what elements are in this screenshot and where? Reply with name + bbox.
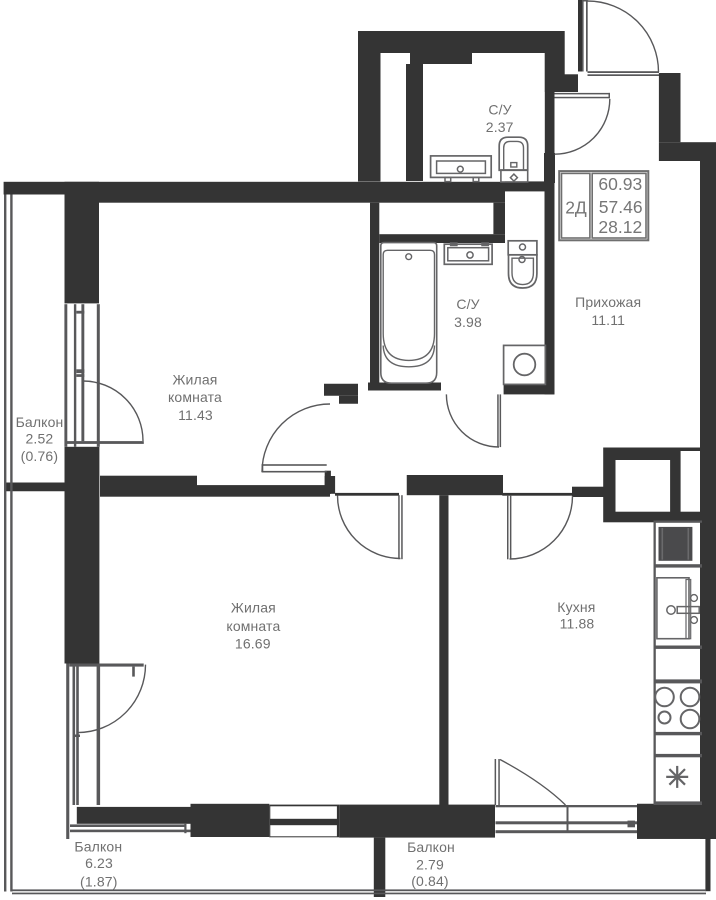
svg-text:Балкон: Балкон <box>74 839 122 855</box>
svg-text:2.52: 2.52 <box>25 430 53 446</box>
svg-text:11.88: 11.88 <box>560 615 595 631</box>
svg-text:Жилая: Жилая <box>231 600 276 616</box>
svg-text:60.93: 60.93 <box>598 174 642 194</box>
svg-text:28.12: 28.12 <box>598 217 642 237</box>
svg-text:3.98: 3.98 <box>454 314 482 330</box>
svg-text:Кухня: Кухня <box>557 599 595 615</box>
svg-text:комната: комната <box>226 618 280 634</box>
svg-text:57.46: 57.46 <box>599 197 643 217</box>
svg-text:16.69: 16.69 <box>235 635 271 651</box>
svg-text:6.23: 6.23 <box>85 855 113 871</box>
svg-text:С/У: С/У <box>456 296 479 312</box>
svg-text:Прихожая: Прихожая <box>575 294 641 310</box>
svg-text:2.79: 2.79 <box>416 857 444 873</box>
svg-text:2.37: 2.37 <box>486 119 514 135</box>
svg-text:(1.87): (1.87) <box>80 873 117 889</box>
svg-text:(0.76): (0.76) <box>21 448 58 464</box>
svg-text:(0.84): (0.84) <box>411 873 448 889</box>
svg-text:С/У: С/У <box>488 102 511 118</box>
svg-text:2Д: 2Д <box>565 198 587 218</box>
svg-text:Балкон: Балкон <box>16 414 64 430</box>
svg-text:11.43: 11.43 <box>178 407 213 423</box>
svg-text:Жилая: Жилая <box>172 372 217 388</box>
svg-text:Балкон: Балкон <box>407 839 455 855</box>
svg-text:11.11: 11.11 <box>591 312 625 328</box>
svg-text:комната: комната <box>168 389 222 405</box>
